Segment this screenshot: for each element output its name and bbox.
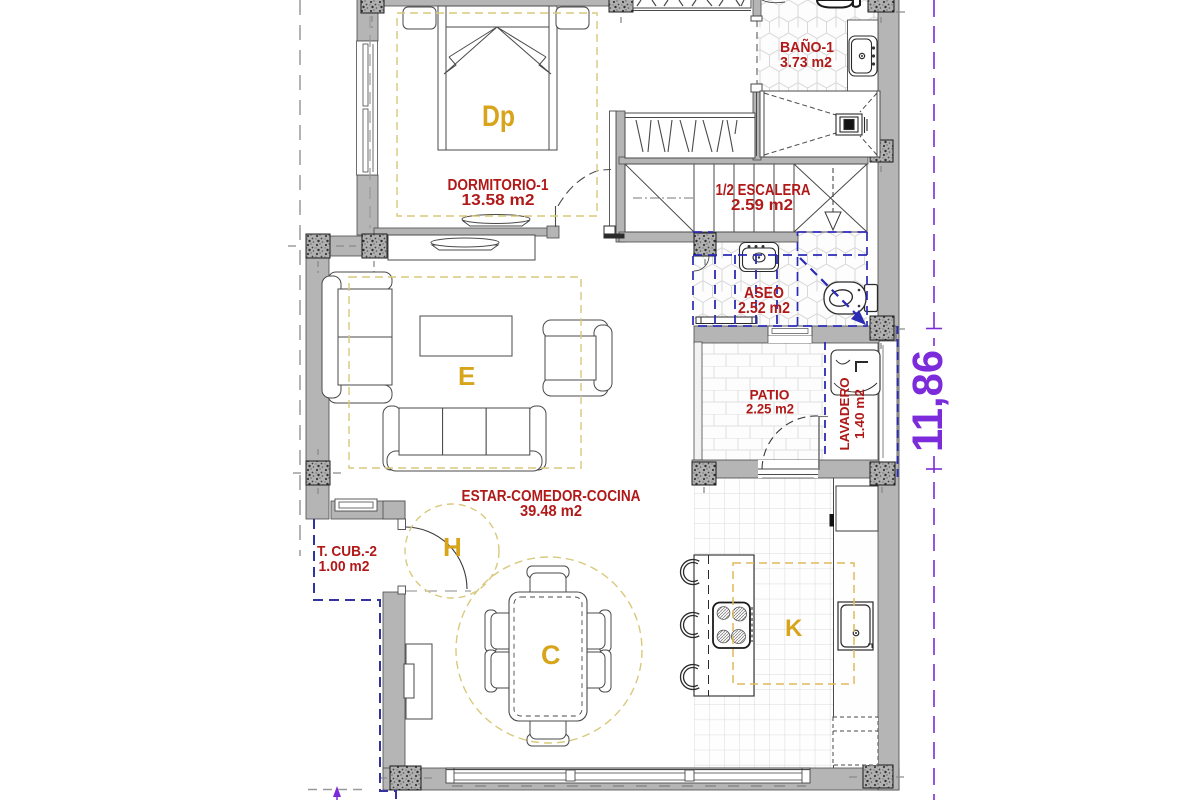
svg-text:1.00 m2: 1.00 m2 — [319, 558, 370, 575]
svg-text:39.48 m2: 39.48 m2 — [520, 503, 582, 520]
svg-text:LAVADERO: LAVADERO — [837, 378, 852, 451]
svg-text:H: H — [443, 532, 462, 562]
svg-text:11,86: 11,86 — [904, 350, 952, 452]
svg-text:2.59 m2: 2.59 m2 — [731, 197, 793, 214]
svg-text:Dp: Dp — [482, 100, 515, 133]
svg-text:1.40 m2: 1.40 m2 — [852, 389, 867, 439]
svg-text:2.25 m2: 2.25 m2 — [746, 401, 794, 417]
svg-text:E: E — [458, 361, 475, 391]
svg-text:2.52 m2: 2.52 m2 — [738, 300, 790, 317]
svg-text:C: C — [541, 640, 561, 670]
svg-text:13.58 m2: 13.58 m2 — [462, 192, 535, 209]
svg-text:K: K — [785, 615, 803, 642]
svg-text:3.73 m2: 3.73 m2 — [780, 54, 832, 71]
